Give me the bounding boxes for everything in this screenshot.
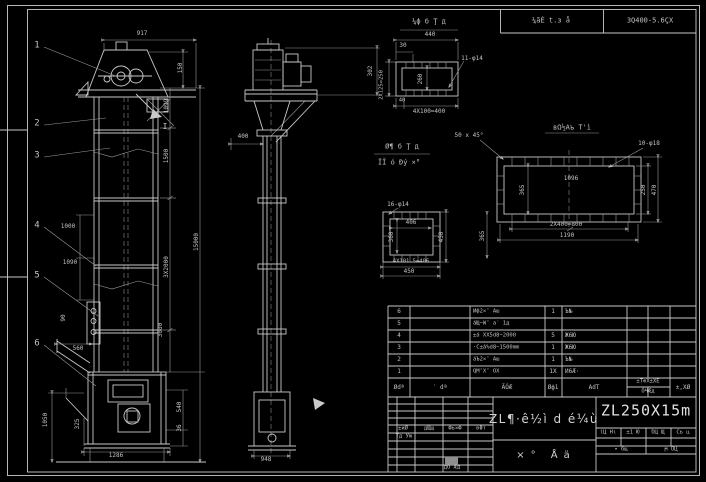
dim-label: 16-φ14 — [387, 202, 409, 208]
dim-label: 1500 — [164, 149, 170, 163]
balloon-leaders — [44, 47, 118, 386]
dim-label: 1099 — [164, 99, 170, 113]
bom-header-weight-top: ±Т⊕Х±ХЕ — [636, 379, 659, 385]
dim-label: 4X100=400 — [413, 109, 446, 115]
dim-label: 365 — [480, 231, 486, 242]
right-cell-1: ίЦ Нι — [600, 430, 617, 436]
dim-label: 2X400=800 — [550, 222, 583, 228]
dim-label: 1096 — [564, 176, 578, 182]
balloon-1: 1 — [34, 42, 39, 51]
bom-row-name: ±á XX5d8−2000 — [473, 333, 516, 339]
dim-label: 302 — [368, 66, 374, 77]
bom-row-material: Ъ№ — [565, 357, 572, 363]
bom-header-name: ÃÓÆ — [502, 385, 513, 391]
dim-label: 10-φ18 — [638, 141, 660, 147]
header-right-cell: 3Q400-5.6ÇX — [627, 18, 673, 25]
detail-top-flange — [385, 30, 464, 109]
bom-row-no: 5 — [397, 321, 401, 327]
bom-header-qty: Øф1 — [548, 385, 559, 391]
dim-label: 325 — [75, 419, 81, 430]
bom-row-name: ·С±á%d8−1500mm — [473, 345, 519, 351]
dim-label: 90 — [61, 314, 67, 321]
bom-row-no: 3 — [397, 345, 401, 351]
dim-label: 365 — [520, 185, 526, 196]
dim-label: 1050 — [43, 413, 49, 427]
bom-row-no: 1 — [397, 369, 401, 375]
dim-label: 400 — [238, 134, 249, 140]
model-number: ZL250X15m — [601, 404, 691, 419]
balloon-5: 5 — [34, 272, 39, 281]
bom-row-name: áЪ2×″ Аш — [473, 357, 500, 363]
bom-row-material: Ъ№ — [565, 309, 572, 315]
detail1-title: ¼ф б Ţ д — [412, 19, 446, 26]
dim-label: 360 — [389, 232, 395, 243]
bom-row-material: Ж6Ю — [565, 333, 576, 339]
dim-label: 470 — [652, 185, 658, 196]
bom-row-qty: 1 — [551, 345, 555, 351]
dim-label: 1286 — [109, 453, 123, 459]
dim-label: 3000 — [158, 323, 164, 337]
dim-label: 560 — [73, 346, 84, 352]
front-elevation-view — [56, 42, 206, 462]
right-row2-1: • бщ — [614, 447, 627, 453]
sig-col-1: ±иØ — [398, 426, 408, 432]
bom-row-qty: 1X — [549, 369, 556, 375]
right-cell-4: Сь ц — [676, 430, 689, 436]
bom-header-weight-bottom: ÓЧÆд — [641, 389, 654, 395]
detail-square-flange — [374, 154, 487, 279]
bom-row-name: áЩ−W″ a′ 1д — [473, 321, 509, 327]
dim-label: 3X2000 — [164, 256, 170, 278]
dim-label: 1190 — [560, 233, 574, 239]
section-mark-label: I — [163, 123, 168, 131]
detail3-title: Ø¶ б Ţ д — [385, 144, 419, 151]
dim-label: 250 — [641, 185, 647, 196]
dim-label: 440 — [425, 32, 436, 38]
dim-label: 540 — [177, 402, 183, 413]
dim-label: 40 — [399, 98, 406, 104]
bom-row-no: 6 — [397, 309, 401, 315]
dim-label: 30 — [399, 43, 406, 49]
bom-row-material: И6Æ· — [565, 369, 579, 375]
dim-label: 406 — [406, 220, 417, 226]
sig-row-2: Тд Ую — [396, 434, 413, 440]
dim-label: 1090 — [63, 260, 77, 266]
bom-header-remark: ±,XØ — [676, 385, 690, 391]
dim-label: 260 — [418, 74, 424, 85]
dim-label: 4X101.5=406 — [393, 259, 429, 265]
front-view-dimensions — [48, 40, 205, 462]
bom-row-no: 4 — [397, 333, 401, 339]
bom-row-qty: 5 — [551, 333, 555, 339]
balloon-3: 3 — [34, 152, 39, 161]
cad-drawing-sheet: 917150109915003X200030001500054036100010… — [0, 0, 706, 482]
sig-col-3: Фь×Ф — [448, 426, 461, 432]
bom-row-name: QΜ″X″ ОХ — [473, 369, 500, 375]
bom-header-no: Ødª — [394, 385, 405, 391]
balloon-6: 6 — [34, 340, 39, 349]
dim-label: 11-φ14 — [461, 56, 483, 62]
bom-header-material: АdТ — [589, 385, 600, 391]
assembly-label: ×° Åä — [516, 451, 576, 461]
dim-label: 917 — [137, 31, 148, 37]
dim-label: 36 — [177, 424, 183, 431]
bom-row-qty: 1 — [551, 357, 555, 363]
bom-row-material: Ж6Ю — [565, 345, 576, 351]
right-row2-2: ϻ ΌЦ — [664, 447, 677, 453]
balloon-2: 2 — [34, 120, 39, 129]
sig-col-4: вΦт — [476, 426, 486, 432]
bom-row-name: Иф2×″ Аш — [473, 309, 500, 315]
sig-col-2: дЩщ — [424, 426, 434, 432]
dim-label: 1000 — [61, 224, 75, 230]
right-cell-3: ΌЦ Щ — [651, 430, 664, 436]
dim-label: 50 x 45° — [455, 133, 484, 139]
balloon-4: 4 — [34, 222, 39, 231]
titleblock-bottom-label: дÓ Æд — [444, 465, 461, 471]
bom-header-code: ′ dª — [433, 385, 447, 391]
detail2-title: вΩ½Аъ Т'ì — [553, 125, 591, 132]
side-elevation-view — [245, 38, 325, 455]
bom-row-no: 2 — [397, 357, 401, 363]
header-left-cell: ¼ãÈ t.з å — [532, 18, 570, 25]
dim-label: 450 — [439, 232, 445, 243]
dim-label: 150 — [178, 63, 184, 74]
right-cell-2: ±1 Ю — [626, 430, 639, 436]
dim-label: 2X125=250 — [379, 70, 385, 100]
dim-label: 450 — [404, 269, 415, 275]
drawing-title: ZL¶·ê½ì d é¼ù — [489, 413, 599, 425]
dim-label: 948 — [261, 457, 272, 463]
detail3-subtitle: ÏĬ ó Ðý ×° — [378, 160, 420, 167]
bom-row-qty: 1 — [551, 309, 555, 315]
side-view-dimensions — [231, 48, 380, 459]
dim-label: 15000 — [194, 233, 200, 251]
